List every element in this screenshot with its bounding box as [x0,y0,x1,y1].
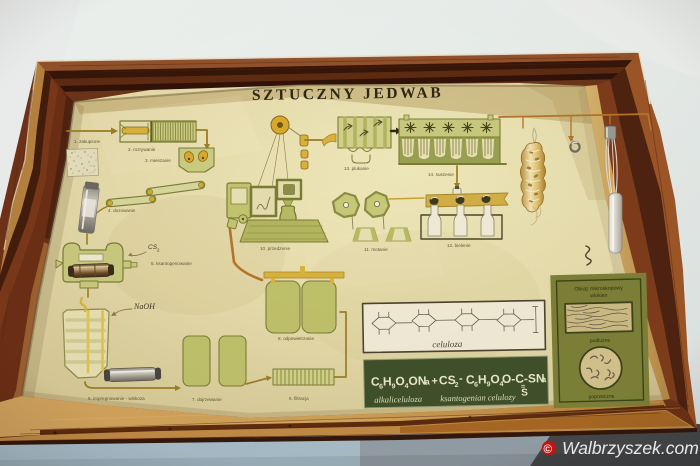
svg-text:Walbrzyszek.com: Walbrzyszek.com [562,438,699,458]
svg-text:©: © [544,444,553,456]
